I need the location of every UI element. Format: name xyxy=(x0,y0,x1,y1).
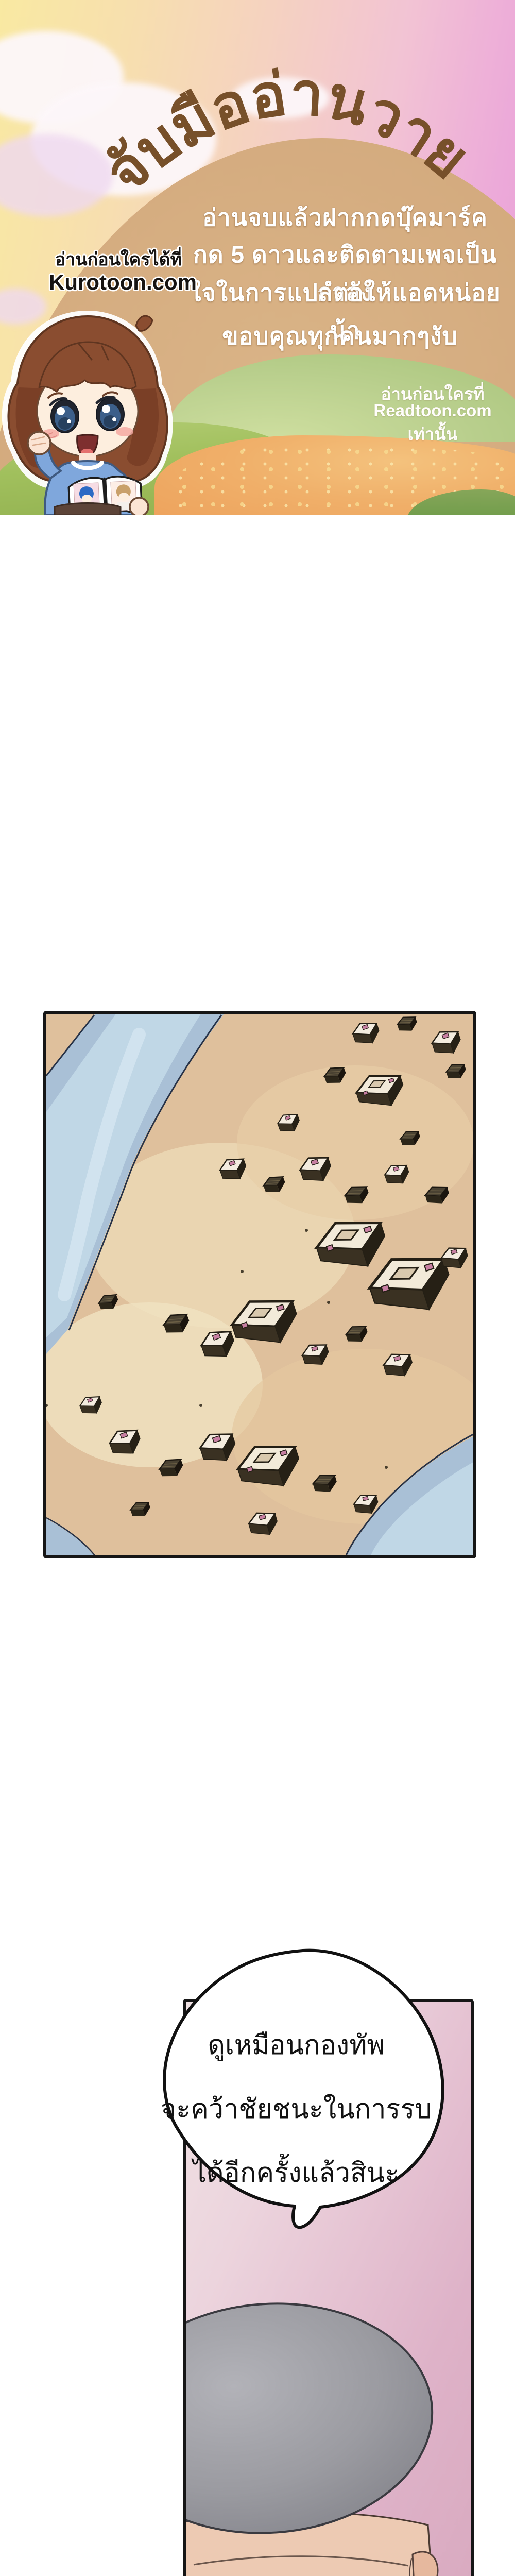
bubble1-line3: ได้อีกครั้งแล้วสินะ xyxy=(152,2141,440,2205)
promo-line-1: อ่านจบแล้วฝากกดบุ๊คมาร์ค xyxy=(175,199,515,236)
panel-city-aerial xyxy=(43,1011,476,1558)
page-title: จับมืออ่านวาย xyxy=(92,60,482,206)
promo-line-4: ขอบคุณทุกคนมากๆงับ xyxy=(170,317,510,355)
mascot-girl-reading xyxy=(1,310,174,515)
header-banner: จับมืออ่านวาย อ่านจบแล้วฝากกดบุ๊คมาร์ค ก… xyxy=(0,0,515,515)
speech-bubble-1-text: ดูเหมือนกองทัพ จะคว้าชัยชนะในการรบ ได้อี… xyxy=(152,2013,440,2205)
bubble1-line1: ดูเหมือนกองทัพ xyxy=(152,2013,440,2077)
svg-text:จับมืออ่านวาย: จับมืออ่านวาย xyxy=(92,60,482,206)
webtoon-page: จับมืออ่านวาย อ่านจบแล้วฝากกดบุ๊คมาร์ค ก… xyxy=(0,0,515,2576)
kurotoon-watermark-line2: Kurotoon.com xyxy=(49,270,188,295)
bubble1-line2: จะคว้าชัยชนะในการรบ xyxy=(152,2077,440,2141)
city-aerial-illustration xyxy=(46,1014,473,1555)
readtoon-watermark-line2: Readtoon.com เท่านั้น xyxy=(360,401,505,448)
kurotoon-watermark-line1: อ่านก่อนใครได้ที่ xyxy=(49,245,188,273)
